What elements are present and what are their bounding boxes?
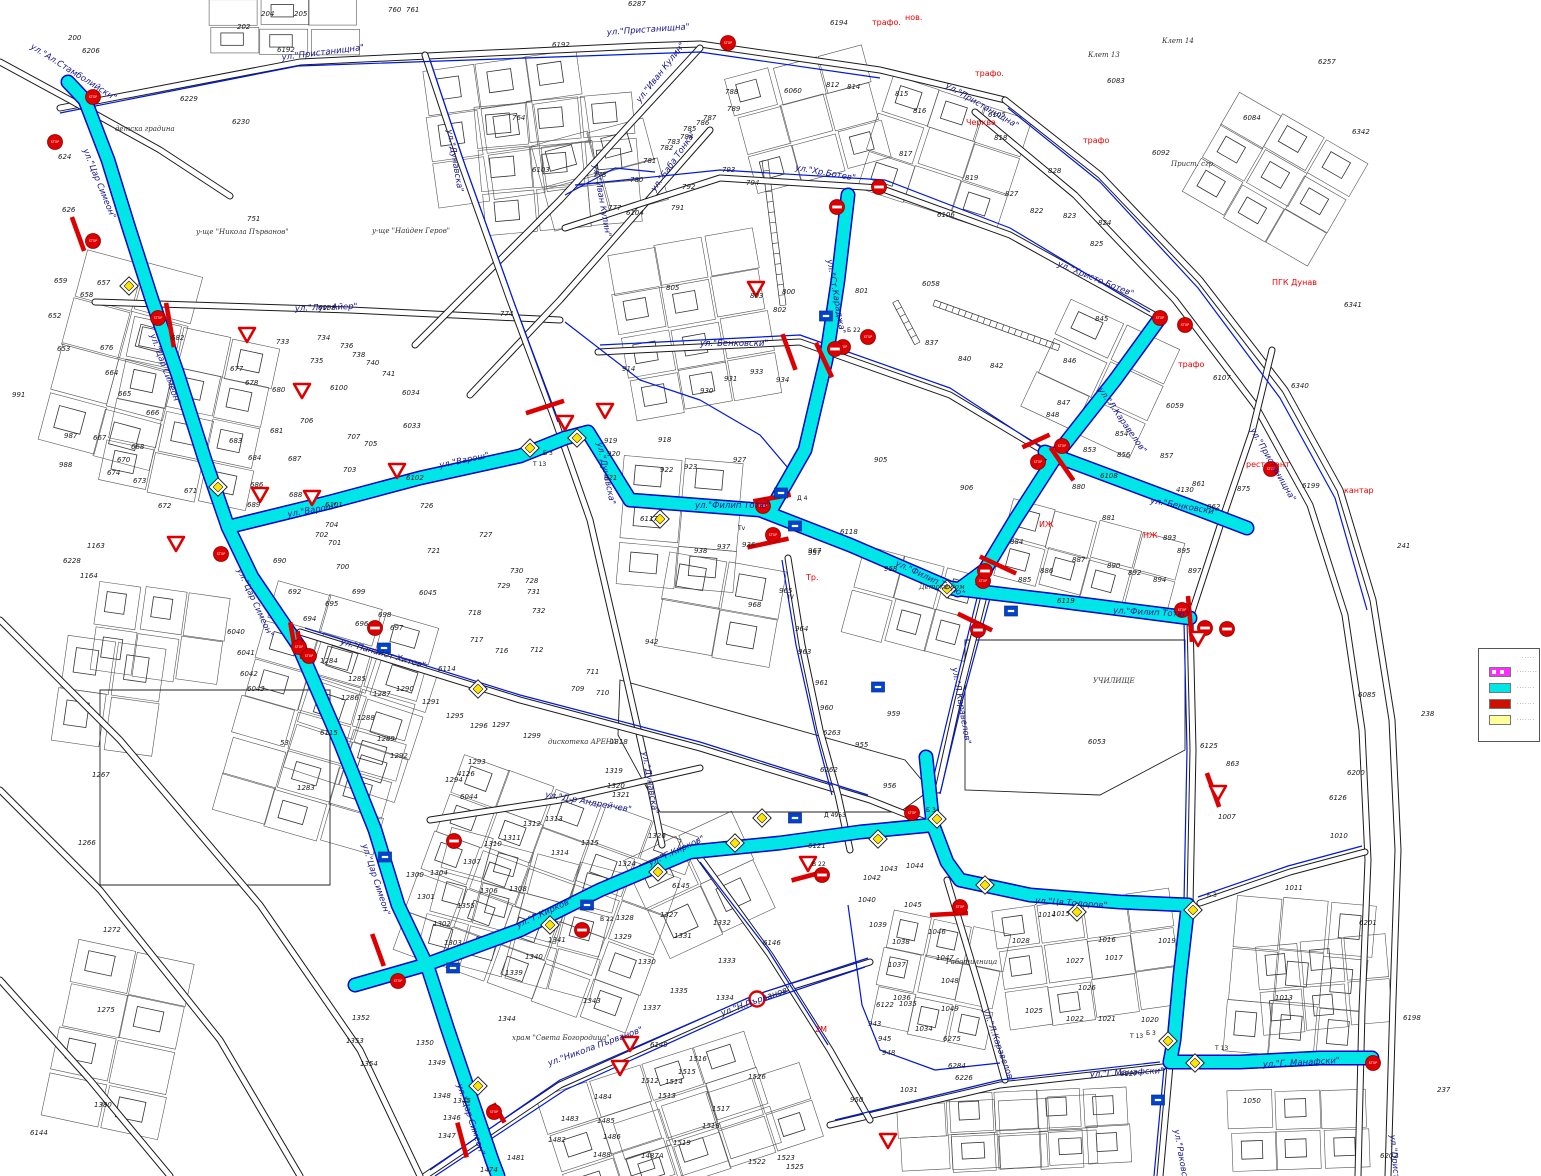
svg-text:STOP: STOP <box>1369 1061 1377 1065</box>
svg-text:STOP: STOP <box>217 552 225 556</box>
parcel-number: 825 <box>1090 240 1104 248</box>
parcel-number: 238 <box>1421 710 1435 718</box>
parcel-number: 1007 <box>1218 813 1236 821</box>
parcel-number: 700 <box>336 563 350 571</box>
parcel-number: 712 <box>530 646 544 654</box>
parcel-number: 1303 <box>444 939 462 947</box>
parcel-number: 1275 <box>97 1006 115 1014</box>
stop-sign-icon: STOP <box>487 1105 502 1120</box>
parcel-number: 6117 <box>640 515 658 523</box>
parcel-number: 906 <box>960 484 974 492</box>
parcel-number: 1485 <box>597 1117 615 1125</box>
parcel-number: 987 <box>64 432 78 440</box>
parcel-number: 777 <box>608 204 622 212</box>
parcel-number: 1299 <box>523 732 541 740</box>
red-annotation: трафо. <box>975 69 1004 78</box>
parcel-number: 1293 <box>468 758 486 766</box>
parcel-number: 664 <box>105 369 118 377</box>
parcel-number: 701 <box>328 539 341 547</box>
parcel-number: 764 <box>512 114 525 122</box>
parcel-number: 1380 <box>94 1101 112 1109</box>
svg-text:STOP: STOP <box>979 579 987 583</box>
parcel-number: 1525 <box>786 1163 804 1171</box>
parcel-number: 6263 <box>823 729 841 737</box>
street-name-label: ул."Л.Каравелов" <box>980 1007 1016 1085</box>
parcel-number: 1523 <box>777 1154 795 1162</box>
info-sign-icon <box>789 813 802 823</box>
parcel-number: 1040 <box>858 896 876 904</box>
parcel-number: 6275 <box>943 1035 961 1043</box>
parcel-number: 942 <box>645 638 659 646</box>
legend-title: ····· <box>1489 655 1535 661</box>
stop-sign-icon: STOP <box>214 547 229 562</box>
parcel-number: 1310 <box>484 840 502 848</box>
parcel-number: 1329 <box>614 933 632 941</box>
yield-sign-icon <box>597 404 613 418</box>
parcel-number: 1283 <box>297 784 315 792</box>
svg-text:STOP: STOP <box>490 1110 498 1114</box>
parcel-number: 6045 <box>419 589 437 597</box>
parcel-number: 945 <box>878 1035 892 1043</box>
stop-sign-icon: STOP <box>151 311 166 326</box>
parcel-number: 6034 <box>402 389 420 397</box>
parcel-number: 761 <box>406 6 419 14</box>
parcel-number: 955 <box>855 741 869 749</box>
parcel-number: 670 <box>117 456 131 464</box>
red-annotation: трафо <box>1178 360 1204 369</box>
svg-text:STOP: STOP <box>769 533 777 537</box>
parcel-number: 736 <box>340 342 354 350</box>
sign-code-label: Б 3 <box>543 450 553 457</box>
parcel-number: 816 <box>913 107 927 115</box>
parcel-number: 6108 <box>1100 472 1118 480</box>
yield-sign-icon <box>168 537 184 551</box>
info-sign-icon <box>447 963 460 973</box>
parcel-number: 6228 <box>63 557 81 565</box>
parcel-number: 1518 <box>702 1122 720 1130</box>
parcel-number: 1045 <box>904 901 922 909</box>
parcel-number: 802 <box>773 306 787 314</box>
parcel-number: 728 <box>525 577 539 585</box>
parcel-number: 1326 <box>648 832 666 840</box>
parcel-number: 1302 <box>433 920 451 928</box>
parcel-number: 923 <box>684 463 697 471</box>
parcel-number: 6192 <box>552 41 570 49</box>
parcel-number: 6121 <box>808 842 826 850</box>
parcel-number: 721 <box>427 547 440 555</box>
parcel-number: 793 <box>722 166 735 174</box>
parcel-number: 886 <box>1040 567 1054 575</box>
parcel-number: 1315 <box>581 839 599 847</box>
info-sign-icon <box>1005 606 1018 616</box>
no-entry-sign-icon <box>815 868 830 883</box>
parcel-number: 847 <box>1057 399 1071 407</box>
parcel-number: 6115 <box>320 729 338 737</box>
sign-code-label: Б 3 <box>926 807 936 814</box>
parcel-number: 1044 <box>906 862 924 870</box>
parcel-number: 667 <box>93 434 107 442</box>
parcel-number: 668 <box>131 443 145 451</box>
parcel-number: 1355 <box>457 902 475 910</box>
parcel-number: 205 <box>294 10 308 18</box>
parcel-number: 6053 <box>1088 738 1106 746</box>
svg-text:STOP: STOP <box>1034 460 1042 464</box>
street-name-label: ул."Пристанищна" <box>606 22 691 38</box>
legend-swatch-red <box>1489 699 1511 709</box>
stop-sign-icon: STOP <box>953 900 968 915</box>
parcel-number: 729 <box>497 582 511 590</box>
parcel-number: 842 <box>990 362 1004 370</box>
no-entry-sign-icon <box>830 200 845 215</box>
parcel-number: 812 <box>826 81 840 89</box>
parcel-number: 6059 <box>1166 402 1184 410</box>
parcel-number: 6104 <box>626 209 644 217</box>
parcel-number: 1486 <box>603 1133 621 1141</box>
sign-code-label: Б 3 <box>1207 892 1217 899</box>
parcel-number: 711 <box>586 668 599 676</box>
parcel-number: 1266 <box>78 839 96 847</box>
parcel-number: 1296 <box>470 722 488 730</box>
no-entry-sign-icon <box>447 834 462 849</box>
parcel-number: 1352 <box>352 1014 370 1022</box>
parcel-number: 202 <box>237 23 251 31</box>
parcel-number: 1291 <box>422 698 440 706</box>
parcel-number: 774 <box>500 310 513 318</box>
yield-sign-icon <box>294 384 310 398</box>
parcel-number: 727 <box>479 531 493 539</box>
parcel-number: 1341 <box>548 936 566 944</box>
stop-sign-icon: STOP <box>721 36 736 51</box>
parcel-number: 710 <box>596 689 610 697</box>
parcel-number: 740 <box>366 359 380 367</box>
parcel-number: 53 <box>280 739 289 747</box>
parcel-number: 885 <box>1018 576 1032 584</box>
parcel-number: 884 <box>1010 538 1023 546</box>
parcel-number: 1515 <box>678 1068 696 1076</box>
closure-bar-icon <box>70 216 87 251</box>
parcel-number: 1481 <box>507 1154 525 1162</box>
parcel-number: 1349 <box>428 1059 446 1067</box>
parcel-number: 6119 <box>1057 597 1075 605</box>
parcel-number: 848 <box>1046 411 1060 419</box>
priority-road-sign-icon <box>120 277 138 295</box>
parcel-number: 814 <box>847 83 860 91</box>
parcel-number: 6126 <box>1329 794 1347 802</box>
parcel-number: 956 <box>883 782 897 790</box>
parcel-number: 1289 <box>377 735 395 743</box>
parcel-number: 677 <box>230 365 244 373</box>
parcel-number: 704 <box>325 521 338 529</box>
parcel-number: 1474 <box>480 1166 498 1174</box>
no-entry-sign-icon <box>575 923 590 938</box>
legend-item-yellow: ······· <box>1489 715 1535 725</box>
legend-label: ········ <box>1517 669 1538 675</box>
parcel-number: 6060 <box>784 87 802 95</box>
parcel-number: 241 <box>1397 542 1410 550</box>
parcel-number: 1048 <box>941 977 959 985</box>
parcel-number: 680 <box>272 386 286 394</box>
info-sign-icon <box>775 488 788 498</box>
parcel-block <box>897 1094 1100 1174</box>
parcel-number: 733 <box>276 338 289 346</box>
info-sign-icon <box>820 311 833 321</box>
parcel-number: 822 <box>1030 207 1044 215</box>
parcel-number: 931 <box>724 375 737 383</box>
parcel-number: 624 <box>58 153 71 161</box>
parcel-number: 1343 <box>583 997 601 1005</box>
parcel-number: 943 <box>868 1020 881 1028</box>
parcel-number: 1297 <box>492 721 510 729</box>
parcel-number: 751 <box>247 215 260 223</box>
parcel-number: 1332 <box>713 919 731 927</box>
parcel-number: 1049 <box>941 1005 959 1013</box>
parcel-number: 815 <box>895 90 909 98</box>
parcel-number: 1512 <box>641 1077 659 1085</box>
parcel-number: 6199 <box>1302 482 1320 490</box>
poi-label: Клет 13 <box>1087 51 1120 59</box>
parcel-number: 948 <box>882 1049 896 1057</box>
parcel-number: 1327 <box>660 911 678 919</box>
parcel-number: 694 <box>303 615 316 623</box>
parcel-number: 890 <box>1107 562 1121 570</box>
no-entry-sign-icon <box>971 623 986 638</box>
parcel-number: 1011 <box>1285 884 1303 892</box>
garage-strips <box>762 160 1060 351</box>
svg-text:STOP: STOP <box>51 140 59 144</box>
sign-code-label: Т 13 <box>532 461 546 468</box>
parcel-number: 731 <box>527 588 540 596</box>
parcel-number: 6100 <box>330 384 348 392</box>
legend-label: ······· <box>1517 701 1535 707</box>
legend-label: ······· <box>1517 717 1535 723</box>
parcel-number: 968 <box>748 601 762 609</box>
parcel-number: 1267 <box>92 771 110 779</box>
sign-code-label: IV <box>788 594 795 601</box>
parcel-number: 930 <box>700 387 714 395</box>
parcel-number: 1516 <box>689 1055 707 1063</box>
parcel-number: 794 <box>746 179 759 187</box>
parcel-number: 1042 <box>863 874 881 882</box>
parcel-block <box>604 228 782 422</box>
parcel-number: 717 <box>470 636 484 644</box>
parcel-number: 887 <box>1072 556 1086 564</box>
parcel-number: 657 <box>97 279 111 287</box>
parcel-number: 738 <box>352 351 366 359</box>
parcel-number: 875 <box>1237 485 1251 493</box>
parcel-number: 6194 <box>830 19 848 27</box>
sign-code-label: Д 4953 <box>824 812 846 819</box>
parcel-number: 1031 <box>900 1086 918 1094</box>
parcel-number: 682 <box>171 334 185 342</box>
svg-text:STOP: STOP <box>1181 323 1189 327</box>
no-entry-sign-icon <box>368 621 383 636</box>
parcel-number: 1020 <box>1141 1016 1159 1024</box>
parcel-number: 1021 <box>1098 1015 1116 1023</box>
parcel-number: 905 <box>874 456 888 464</box>
parcel-number: 6043 <box>247 685 265 693</box>
parcel-number: 1337 <box>643 1004 661 1012</box>
parcel-number: 676 <box>100 344 114 352</box>
parcel-number: 880 <box>1072 483 1086 491</box>
svg-text:STOP: STOP <box>908 811 916 815</box>
parcel-number: 6149 <box>650 1041 668 1049</box>
poi-label: Детски дом <box>918 583 965 591</box>
no-entry-sign-icon <box>828 342 843 357</box>
parcel-number: 1163 <box>87 542 105 550</box>
parcel-number: 1340 <box>525 953 543 961</box>
parcel-number: 666 <box>146 409 160 417</box>
red-annotation: трафо. <box>872 18 901 27</box>
parcel-number: 1514 <box>665 1078 683 1086</box>
parcel-number: 204 <box>261 10 274 18</box>
parcel-number: 1328 <box>616 914 634 922</box>
svg-text:STOP: STOP <box>89 239 97 243</box>
parcel-number: 960 <box>820 704 834 712</box>
parcel-number: 1050 <box>1243 1097 1261 1105</box>
parcel-number: 6058 <box>922 280 940 288</box>
parcel-number: 988 <box>59 461 73 469</box>
parcel-number: 6041 <box>237 649 255 657</box>
parcel-number: 1043 <box>880 865 898 873</box>
parcel-number: 1324 <box>618 860 636 868</box>
parcel-number: 6044 <box>460 793 478 801</box>
parcel-number: 6040 <box>227 628 245 636</box>
parcel-number: 892 <box>1128 569 1142 577</box>
parcel-number: 914 <box>622 365 635 373</box>
street-name-label: ул."Панайот Хитов" <box>338 637 427 671</box>
parcel-number: 703 <box>343 466 356 474</box>
parcel-number: 699 <box>352 588 366 596</box>
parcel-number: 863 <box>1226 760 1239 768</box>
parcel-number: 6092 <box>1152 149 1170 157</box>
legend-item-cyan: ······· <box>1489 683 1535 693</box>
parcel-number: 653 <box>57 345 70 353</box>
parcel-number: 6083 <box>1107 77 1125 85</box>
parcel-number: 857 <box>1160 452 1174 460</box>
closure-bar-icon <box>370 933 386 967</box>
no-entry-sign-icon <box>872 180 887 195</box>
no-entry-sign-icon <box>1220 622 1235 637</box>
parcel-number: 895 <box>1177 547 1191 555</box>
poi-label: детска градина <box>115 125 175 133</box>
parcel-number: 927 <box>733 456 747 464</box>
parcel-number: 1308 <box>509 885 527 893</box>
red-annotation: НЖ <box>1143 531 1158 540</box>
parcel-number: 1015 <box>1052 910 1070 918</box>
parcel-number: 894 <box>1153 576 1166 584</box>
parcel-number: 4126 <box>457 770 475 778</box>
red-annotation: ИЖ <box>1039 520 1054 529</box>
stop-sign-icon: STOP <box>1031 455 1046 470</box>
parcel-number: 686 <box>250 481 264 489</box>
red-annotation: кантар <box>1344 486 1374 495</box>
info-sign-icon <box>581 900 594 910</box>
red-annotation: ПГК Дунав <box>1272 278 1317 287</box>
sign-code-label: Б 3 <box>1146 1030 1156 1037</box>
parcel-number: 718 <box>468 609 482 617</box>
sign-code-label: Т 13 <box>1214 1045 1228 1052</box>
parcel-number: 689 <box>247 501 261 509</box>
map-canvas[interactable]: STOPSTOPSTOPSTOPSTOPSTOPSTOPSTOPSTOPSTOP… <box>0 0 1541 1176</box>
parcel-number: 672 <box>158 502 172 510</box>
parcel-number: 658 <box>80 291 94 299</box>
parcel-number: 846 <box>1063 357 1077 365</box>
svg-text:STOP: STOP <box>1156 316 1164 320</box>
parcel-number: 730 <box>510 567 524 575</box>
svg-text:STOP: STOP <box>864 335 872 339</box>
parcel-number: 1028 <box>1012 937 1030 945</box>
sign-code-label: В 22 <box>812 861 826 868</box>
parcel-number: 1334 <box>716 994 734 1002</box>
legend-swatch-cyan <box>1489 683 1511 693</box>
parcel-number: 1517 <box>712 1105 730 1113</box>
parcel-number: 967 <box>808 547 822 555</box>
parcel-number: 1312 <box>523 820 541 828</box>
red-annotation: нов. <box>905 13 922 22</box>
info-sign-icon <box>872 682 885 692</box>
parcel-number: 1284 <box>320 657 338 665</box>
parcel-number: 1287 <box>373 690 391 698</box>
poi-label: дискотека АРЕНА <box>548 738 617 746</box>
legend-label: ······· <box>1517 685 1535 691</box>
parcel-number: 673 <box>133 477 146 485</box>
parcel-block <box>1181 90 1368 267</box>
parcel-number: 782 <box>660 144 674 152</box>
parcel-block <box>653 551 786 667</box>
parcel-number: 1164 <box>80 572 98 580</box>
parcel-number: 760 <box>388 6 402 14</box>
parcel-number: 6342 <box>1352 128 1370 136</box>
parcel-number: 1026 <box>1078 984 1096 992</box>
street-name-label: ул."Раковски" <box>1171 1128 1192 1176</box>
svg-text:STOP: STOP <box>89 95 97 99</box>
parcel-number: 1320 <box>607 782 625 790</box>
legend-item-magenta-striped: ········ <box>1489 667 1535 677</box>
stop-sign-icon: STOP <box>1055 439 1070 454</box>
parcel-number: 805 <box>666 284 680 292</box>
parcel-number: 803 <box>750 292 763 300</box>
parcel-number: 6144 <box>30 1129 48 1137</box>
stop-sign-icon: STOP <box>302 649 317 664</box>
parcel-number: 1482 <box>548 1136 566 1144</box>
poi-label: Прист. сгр. <box>1170 160 1215 168</box>
red-annotation: Тр. <box>805 573 819 582</box>
svg-text:STOP: STOP <box>1058 444 1066 448</box>
yield-sign-icon <box>880 1134 896 1148</box>
parcel-number: 1288 <box>357 714 375 722</box>
parcel-number: 626 <box>62 206 76 214</box>
parcel-number: 6229 <box>180 95 198 103</box>
legend-item-red: ······· <box>1489 699 1535 709</box>
poi-label: у-ще "Никола Първанов" <box>195 228 289 236</box>
parcel-number: 1347 <box>438 1132 456 1140</box>
parcel-number: 707 <box>347 433 361 441</box>
parcel-number: 840 <box>958 355 972 363</box>
parcel-number: 861 <box>1192 480 1205 488</box>
parcel-number: 696 <box>355 620 369 628</box>
parcel-number: 6085 <box>1358 691 1376 699</box>
parcel-number: 6145 <box>672 882 690 890</box>
stop-sign-icon: STOP <box>1178 318 1193 333</box>
parcel-number: 1301 <box>417 893 435 901</box>
info-sign-icon <box>1152 1095 1165 1105</box>
parcel-number: 4130 <box>1176 486 1194 494</box>
parcel-number: 1039 <box>869 921 887 929</box>
parcel-number: 827 <box>1005 190 1019 198</box>
parcel-number: 678 <box>245 379 259 387</box>
parcel-number: 6200 <box>1347 769 1365 777</box>
stop-sign-icon: STOP <box>1366 1056 1381 1071</box>
